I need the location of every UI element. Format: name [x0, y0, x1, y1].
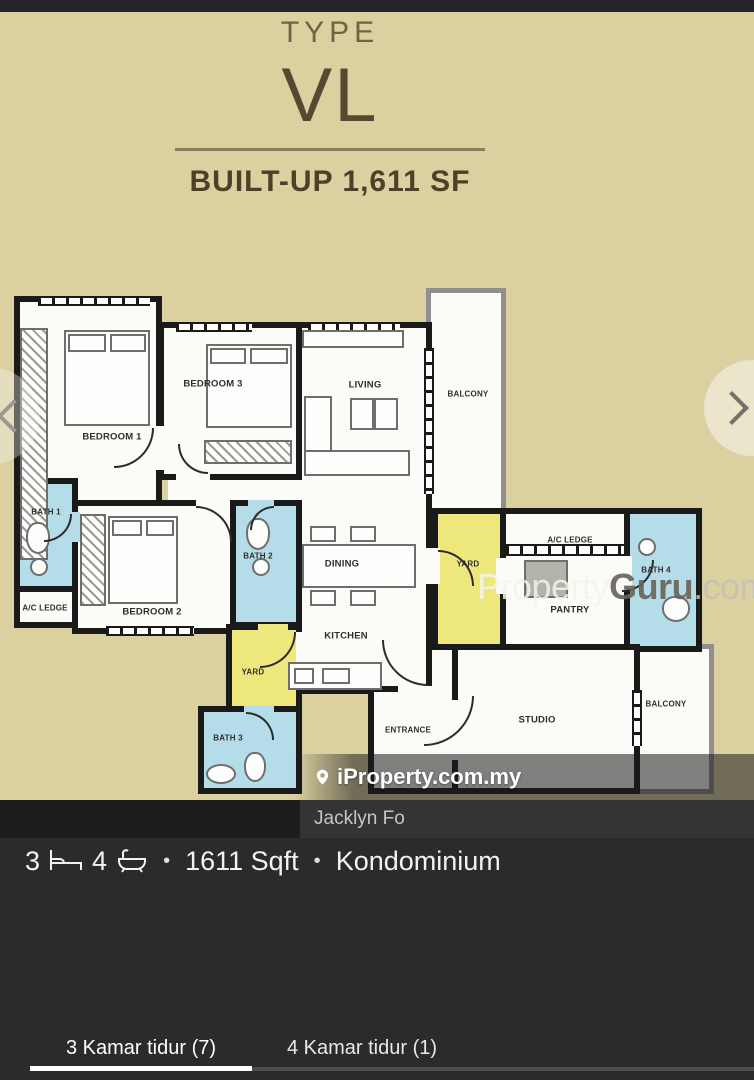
pillow — [110, 334, 146, 352]
pillow — [68, 334, 106, 352]
status-bar — [0, 0, 754, 12]
basin — [638, 538, 656, 556]
room-label: A/C LEDGE — [22, 604, 67, 613]
chair — [310, 590, 336, 606]
bed-count: 3 — [25, 846, 40, 877]
chair — [350, 590, 376, 606]
propertyguru-watermark-part1: Property — [477, 566, 609, 607]
door-opening — [176, 474, 210, 482]
tab-3-bedroom[interactable]: 3 Kamar tidur (7) — [30, 1034, 252, 1062]
room-label: ENTRANCE — [385, 726, 431, 735]
plan-title-block: TYPE VL BUILT-UP 1,611 SF — [150, 14, 510, 199]
coffee-table — [350, 398, 374, 430]
room-label: BALCONY — [646, 700, 687, 709]
pillow — [146, 520, 174, 536]
window-hatch — [506, 544, 624, 556]
propertyguru-watermark-part3: .com.my — [693, 566, 754, 607]
propertyguru-watermark: PropertyGuru.com.my — [477, 566, 754, 608]
room-label: STUDIO — [518, 715, 555, 726]
basin — [206, 764, 236, 784]
toilet — [244, 752, 266, 782]
window-hatch — [38, 296, 150, 306]
corridor-opening — [432, 650, 452, 694]
room-label: YARD — [242, 668, 265, 677]
location-pin-icon — [314, 767, 331, 788]
tab-4-bedroom[interactable]: 4 Kamar tidur (1) — [252, 1034, 472, 1062]
room-label: LIVING — [349, 380, 382, 391]
room-label: DINING — [325, 559, 359, 570]
room-label: BALCONY — [448, 390, 489, 399]
room-label: BEDROOM 1 — [82, 432, 141, 443]
iproperty-watermark-text: iProperty.com.my — [337, 764, 521, 790]
plan-builtup: BUILT-UP 1,611 SF — [150, 165, 510, 199]
active-tab-indicator — [30, 1066, 252, 1071]
plan-type-label: TYPE — [150, 14, 510, 52]
listing-info-row: 3 4 • 1611 Sqft • Kondominium — [0, 838, 754, 884]
door-opening — [154, 426, 166, 470]
bathtub-icon — [116, 848, 148, 874]
pillow — [250, 348, 288, 364]
propertyguru-watermark-part2: Guru — [609, 566, 693, 607]
sliding-door-hatch — [632, 690, 642, 746]
room-label: BATH 2 — [243, 552, 273, 561]
door-opening — [296, 632, 304, 666]
door-opening — [258, 624, 288, 632]
room-label: KITCHEN — [324, 631, 368, 642]
wardrobe — [204, 440, 292, 464]
listing-area: 1611 Sqft — [185, 846, 299, 877]
sofa-seat — [304, 450, 410, 476]
tv-cabinet — [302, 330, 404, 348]
chair — [310, 526, 336, 542]
window-hatch — [106, 626, 194, 636]
coffee-table — [374, 398, 398, 430]
pillow — [210, 348, 246, 364]
separator-dot: • — [163, 850, 170, 873]
iproperty-watermark-band: iProperty.com.my — [294, 754, 754, 800]
basin — [252, 558, 270, 576]
room-label: BEDROOM 2 — [122, 607, 181, 618]
window-hatch — [176, 322, 252, 332]
stove — [322, 668, 350, 684]
hallway-opening — [168, 480, 304, 500]
room-label: BEDROOM 3 — [183, 379, 242, 390]
bed-icon — [49, 848, 83, 874]
basin — [30, 558, 48, 576]
tab-track-line — [252, 1067, 754, 1071]
plan-type-code: VL — [150, 52, 510, 140]
chevron-left-icon — [0, 399, 31, 433]
room-label: YARD — [457, 560, 480, 569]
room-label: BATH 1 — [31, 508, 61, 517]
chair — [350, 526, 376, 542]
title-divider — [175, 148, 485, 151]
door-opening — [398, 686, 432, 694]
bath-count: 4 — [92, 846, 107, 877]
separator-dot: • — [314, 850, 321, 873]
agent-name: Jacklyn Fo — [314, 808, 405, 830]
photo-footer-spacer — [0, 800, 300, 838]
pillow — [112, 520, 142, 536]
sliding-door-hatch — [424, 348, 434, 494]
room-balcony-top — [426, 288, 506, 514]
room-label: A/C LEDGE — [547, 536, 592, 545]
wardrobe — [80, 514, 106, 606]
kitchen-sink — [294, 668, 314, 684]
room-label: BATH 3 — [213, 734, 243, 743]
property-type: Kondominium — [336, 846, 501, 877]
chevron-right-icon — [715, 391, 749, 425]
agent-attribution-bar: Jacklyn Fo — [300, 800, 754, 838]
